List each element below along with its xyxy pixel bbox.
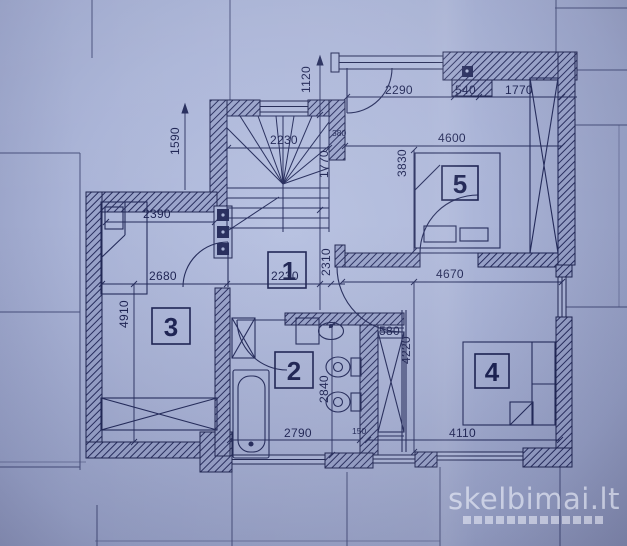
room-label-room4: 4 [485, 357, 500, 387]
dim-2290: 2290 [385, 83, 413, 97]
dim-4670: 4670 [436, 267, 464, 281]
duct-shaft-left [232, 318, 255, 358]
dim-1770-stair: 1770 [317, 150, 331, 178]
dim-380: 380 [332, 128, 346, 138]
dim-2840: 2840 [317, 375, 331, 403]
dim-2680: 2680 [149, 269, 177, 283]
dim-2790: 2790 [284, 426, 312, 440]
dim-4220: 4220 [399, 336, 413, 364]
dim-2390: 2390 [143, 207, 171, 221]
room-label-hall: 1 [282, 256, 296, 286]
bidet [326, 392, 361, 412]
dim-4110: 4110 [449, 426, 476, 440]
wardrobe-room3 [101, 398, 217, 430]
dim-580: 580 [379, 324, 400, 338]
sink [319, 323, 344, 340]
dim-4910: 4910 [117, 300, 131, 328]
dim-3830: 3830 [395, 149, 409, 177]
dim-4600: 4600 [438, 131, 466, 145]
toilet [326, 357, 361, 377]
room-label-room5: 5 [453, 169, 467, 199]
dim-1770-top: 1770 [505, 83, 533, 97]
dim-1590: 1590 [168, 127, 182, 155]
bathtub [233, 370, 269, 458]
door-room5 [420, 195, 478, 253]
dim-150: 150 [352, 426, 366, 436]
room-label-room3: 3 [164, 312, 178, 342]
floorplan-photo: 2290 540 1770 4600 2230 2390 2680 2230 4… [0, 0, 627, 546]
vent-block [214, 66, 473, 258]
floorplan-drawing: 2290 540 1770 4600 2230 2390 2680 2230 4… [0, 0, 627, 546]
wardrobe-room5 [530, 78, 558, 253]
dim-2310: 2310 [319, 248, 333, 276]
bed-room3 [101, 202, 147, 294]
dim-540: 540 [455, 83, 476, 97]
dim-1120: 1120 [299, 66, 313, 93]
room-label-bathroom: 2 [287, 356, 301, 386]
dim-2230-stair: 2230 [270, 133, 298, 147]
door-bathroom [237, 320, 287, 370]
